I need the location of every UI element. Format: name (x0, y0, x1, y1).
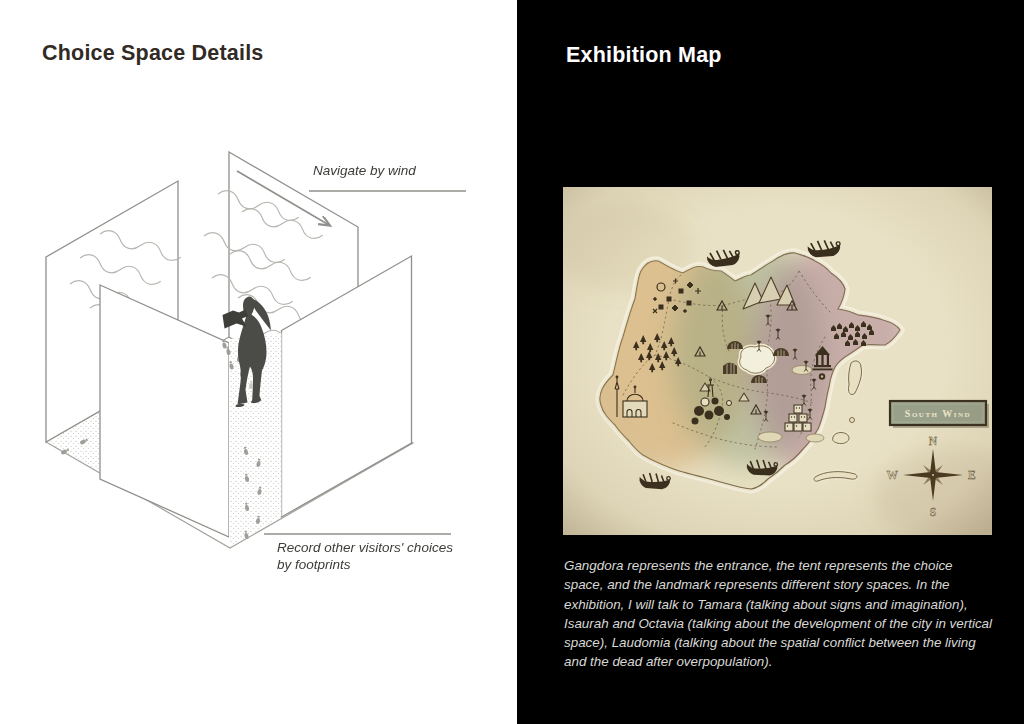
footprints-label-line1: Record other visitors' choices (277, 540, 453, 555)
wind-label: Navigate by wind (313, 163, 416, 178)
inner-wall (100, 285, 229, 537)
footprints-label-line2: by footprints (277, 557, 351, 572)
fantasy-map-graphic: South Wind N S W E (563, 187, 992, 535)
slide-page: Choice Space Details (0, 0, 1024, 724)
exhibition-map-image: South Wind N S W E (563, 187, 992, 535)
parchment-vignette (563, 187, 992, 535)
annotation-wind: Navigate by wind (313, 163, 416, 180)
choice-space-panel: Choice Space Details (0, 0, 517, 724)
choice-space-diagram (0, 0, 517, 724)
right-panel-title: Exhibition Map (566, 43, 722, 68)
annotation-footprints: Record other visitors' choices by footpr… (277, 540, 453, 574)
map-caption: Gangdora represents the entrance, the te… (564, 556, 995, 672)
exhibition-map-panel: Exhibition Map (517, 0, 1024, 724)
